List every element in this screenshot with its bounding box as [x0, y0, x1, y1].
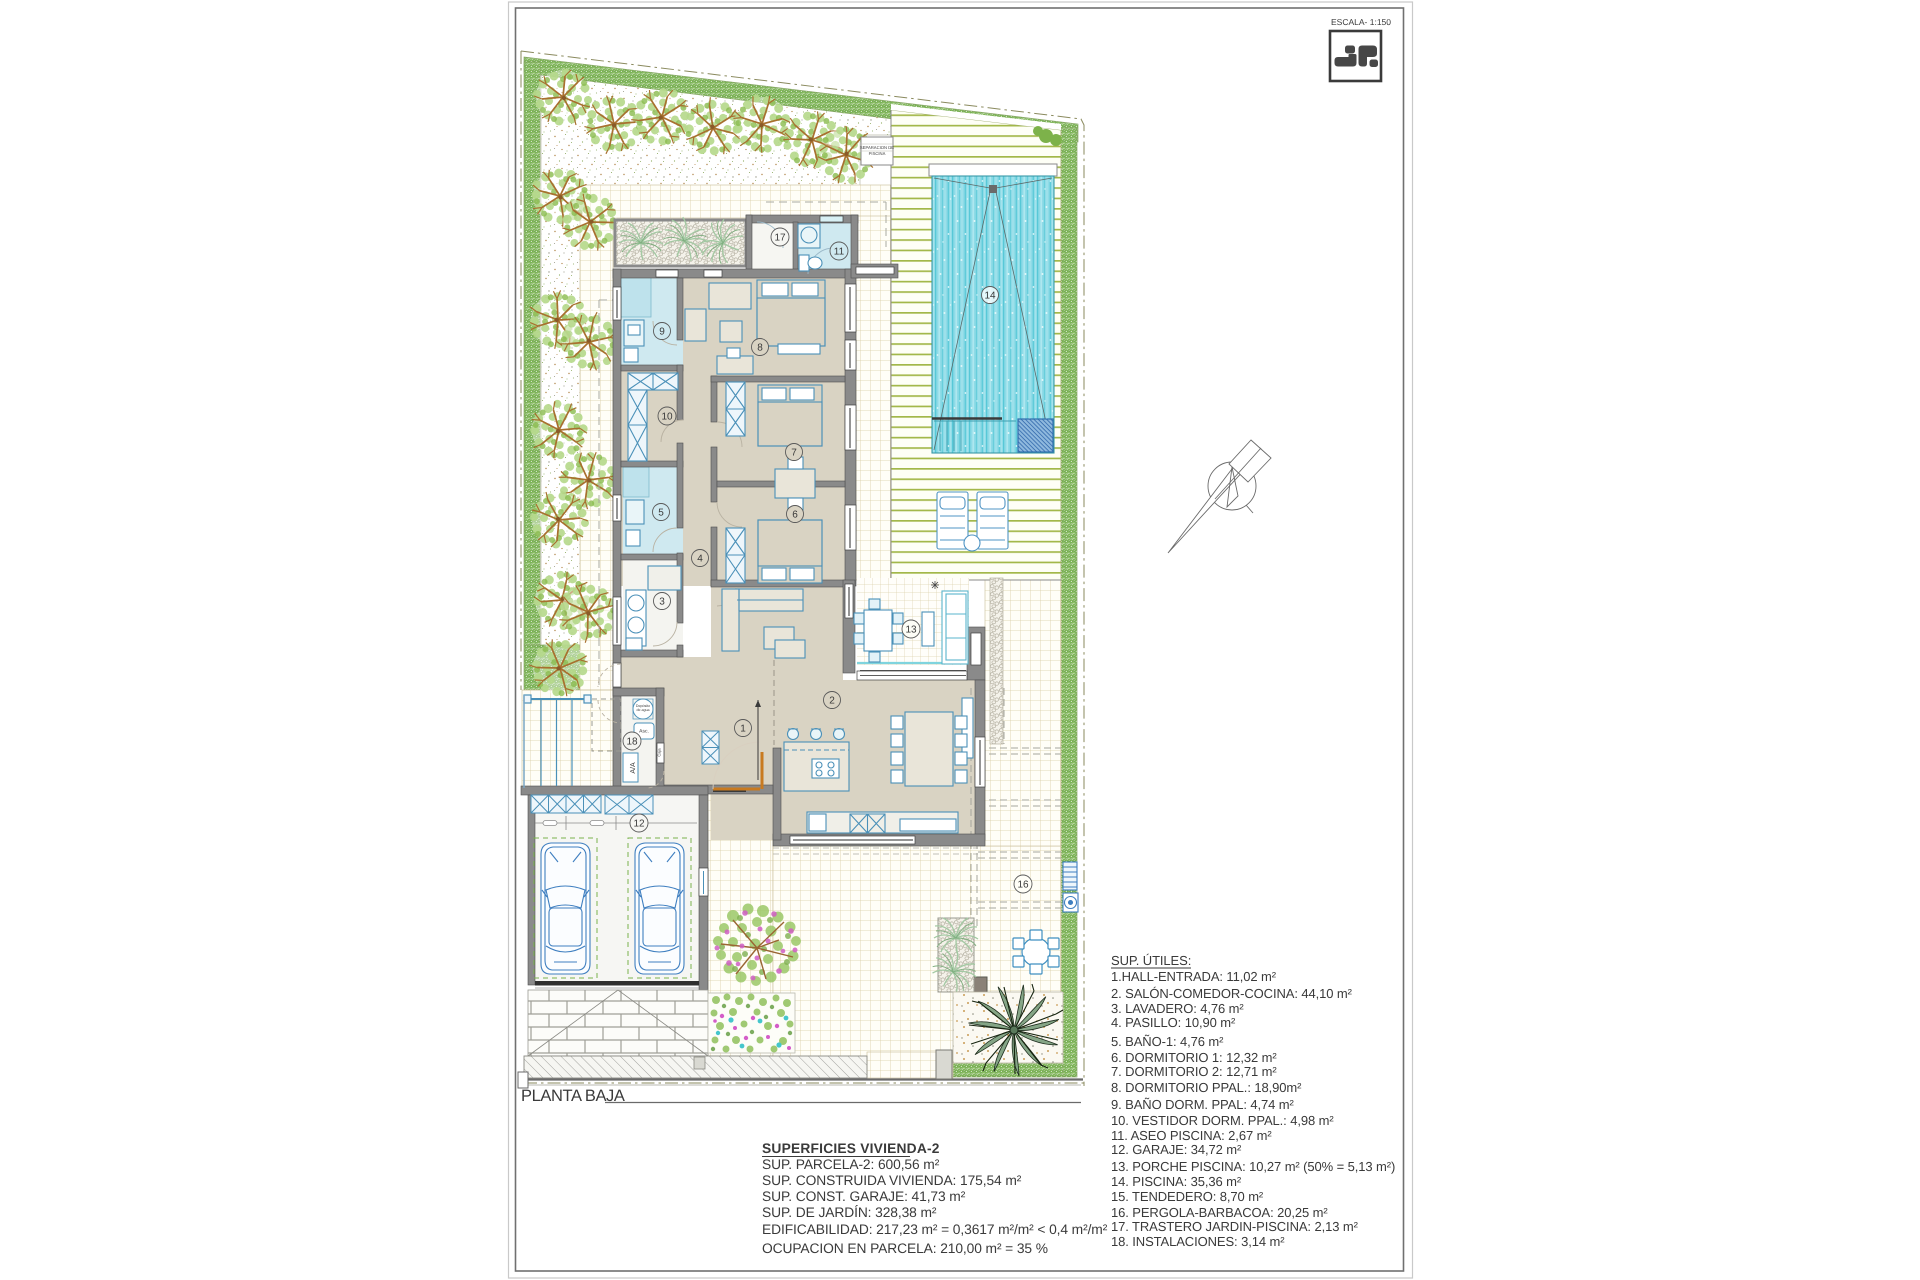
svg-text:5: 5 [658, 508, 664, 519]
svg-text:11. ASEO PISCINA: 2,67 m²: 11. ASEO PISCINA: 2,67 m² [1111, 1128, 1272, 1143]
svg-text:de agua: de agua [637, 708, 650, 712]
svg-text:3. LAVADERO: 4,76 m²: 3. LAVADERO: 4,76 m² [1111, 1001, 1244, 1016]
svg-text:18. INSTALACIONES: 3,14 m²: 18. INSTALACIONES: 3,14 m² [1111, 1234, 1285, 1249]
svg-text:SUP. CONSTRUIDA VIVIENDA: 175,: SUP. CONSTRUIDA VIVIENDA: 175,54 m² [762, 1173, 1022, 1188]
svg-text:SUP. DE JARDÍN: 328,38 m²: SUP. DE JARDÍN: 328,38 m² [762, 1205, 937, 1220]
svg-text:6. DORMITORIO 1: 12,32 m²: 6. DORMITORIO 1: 12,32 m² [1111, 1050, 1277, 1065]
svg-text:13: 13 [905, 625, 917, 636]
svg-text:1: 1 [740, 724, 746, 735]
svg-text:A/A: A/A [629, 762, 637, 774]
svg-text:16. PERGOLA-BARBACOA: 20,25 m²: 16. PERGOLA-BARBACOA: 20,25 m² [1111, 1205, 1328, 1220]
svg-text:10. VESTIDOR DORM. PPAL.: 4,98: 10. VESTIDOR DORM. PPAL.: 4,98 m² [1111, 1113, 1334, 1128]
svg-text:SUPERFICIES VIVIENDA-2: SUPERFICIES VIVIENDA-2 [762, 1141, 940, 1156]
svg-text:2: 2 [829, 696, 835, 707]
svg-text:7: 7 [791, 448, 797, 459]
svg-text:2. SALÓN-COMEDOR-COCINA: 44,10: 2. SALÓN-COMEDOR-COCINA: 44,10 m² [1111, 986, 1353, 1001]
svg-text:12: 12 [633, 819, 645, 830]
svg-text:8. DORMITORIO PPAL.: 18,90m²: 8. DORMITORIO PPAL.: 18,90m² [1111, 1080, 1302, 1095]
svg-text:SUP. CONST. GARAJE: 41,73 m²: SUP. CONST. GARAJE: 41,73 m² [762, 1189, 966, 1204]
svg-text:16: 16 [1017, 880, 1029, 891]
svg-text:SUP. ÚTILES:: SUP. ÚTILES: [1111, 953, 1191, 968]
svg-text:Caja: Caja [657, 748, 662, 757]
svg-text:8: 8 [757, 343, 763, 354]
svg-text:7. DORMITORIO 2: 12,71 m²: 7. DORMITORIO 2: 12,71 m² [1111, 1064, 1277, 1079]
svg-text:13. PORCHE PISCINA: 10,27 m² (: 13. PORCHE PISCINA: 10,27 m² (50% = 5,13… [1111, 1159, 1395, 1174]
svg-text:14: 14 [984, 291, 996, 302]
svg-text:1.HALL-ENTRADA: 11,02 m²: 1.HALL-ENTRADA: 11,02 m² [1111, 969, 1277, 984]
svg-text:10: 10 [661, 412, 673, 423]
svg-text:9: 9 [659, 327, 665, 338]
svg-text:EDIFICABILIDAD: 217,23 m² = 0: EDIFICABILIDAD: 217,23 m² = 0,3617 m²/m²… [762, 1222, 1108, 1237]
svg-text:ESCALA- 1:150: ESCALA- 1:150 [1331, 17, 1391, 27]
svg-text:5. BAÑO-1: 4,76 m²: 5. BAÑO-1: 4,76 m² [1111, 1034, 1224, 1049]
svg-text:15. TENDEDERO: 8,70 m²: 15. TENDEDERO: 8,70 m² [1111, 1189, 1264, 1204]
svg-text:14. PISCINA: 35,36 m²: 14. PISCINA: 35,36 m² [1111, 1174, 1242, 1189]
svg-text:17: 17 [774, 233, 786, 244]
svg-text:11: 11 [834, 247, 845, 258]
svg-text:12. GARAJE: 34,72 m²: 12. GARAJE: 34,72 m² [1111, 1142, 1242, 1157]
svg-text:SEPARACION DE: SEPARACION DE [860, 145, 894, 150]
svg-text:18: 18 [626, 737, 638, 748]
svg-text:3: 3 [659, 597, 665, 608]
svg-text:6: 6 [792, 510, 798, 521]
svg-text:PISCINA: PISCINA [869, 151, 886, 156]
svg-text:4. PASILLO: 10,90 m²: 4. PASILLO: 10,90 m² [1111, 1015, 1236, 1030]
svg-text:SUP. PARCELA-2: 600,56 m²: SUP. PARCELA-2: 600,56 m² [762, 1157, 940, 1172]
svg-text:OCUPACION EN PARCELA: 210,00 m: OCUPACION EN PARCELA: 210,00 m² = 35 % [762, 1241, 1048, 1256]
svg-text:4: 4 [697, 554, 703, 565]
svg-text:9. BAÑO DORM. PPAL: 4,74 m²: 9. BAÑO DORM. PPAL: 4,74 m² [1111, 1097, 1294, 1112]
svg-text:17. TRASTERO JARDIN-PISCINA: 2: 17. TRASTERO JARDIN-PISCINA: 2,13 m² [1111, 1219, 1359, 1234]
svg-text:Asc.: Asc. [639, 729, 649, 735]
